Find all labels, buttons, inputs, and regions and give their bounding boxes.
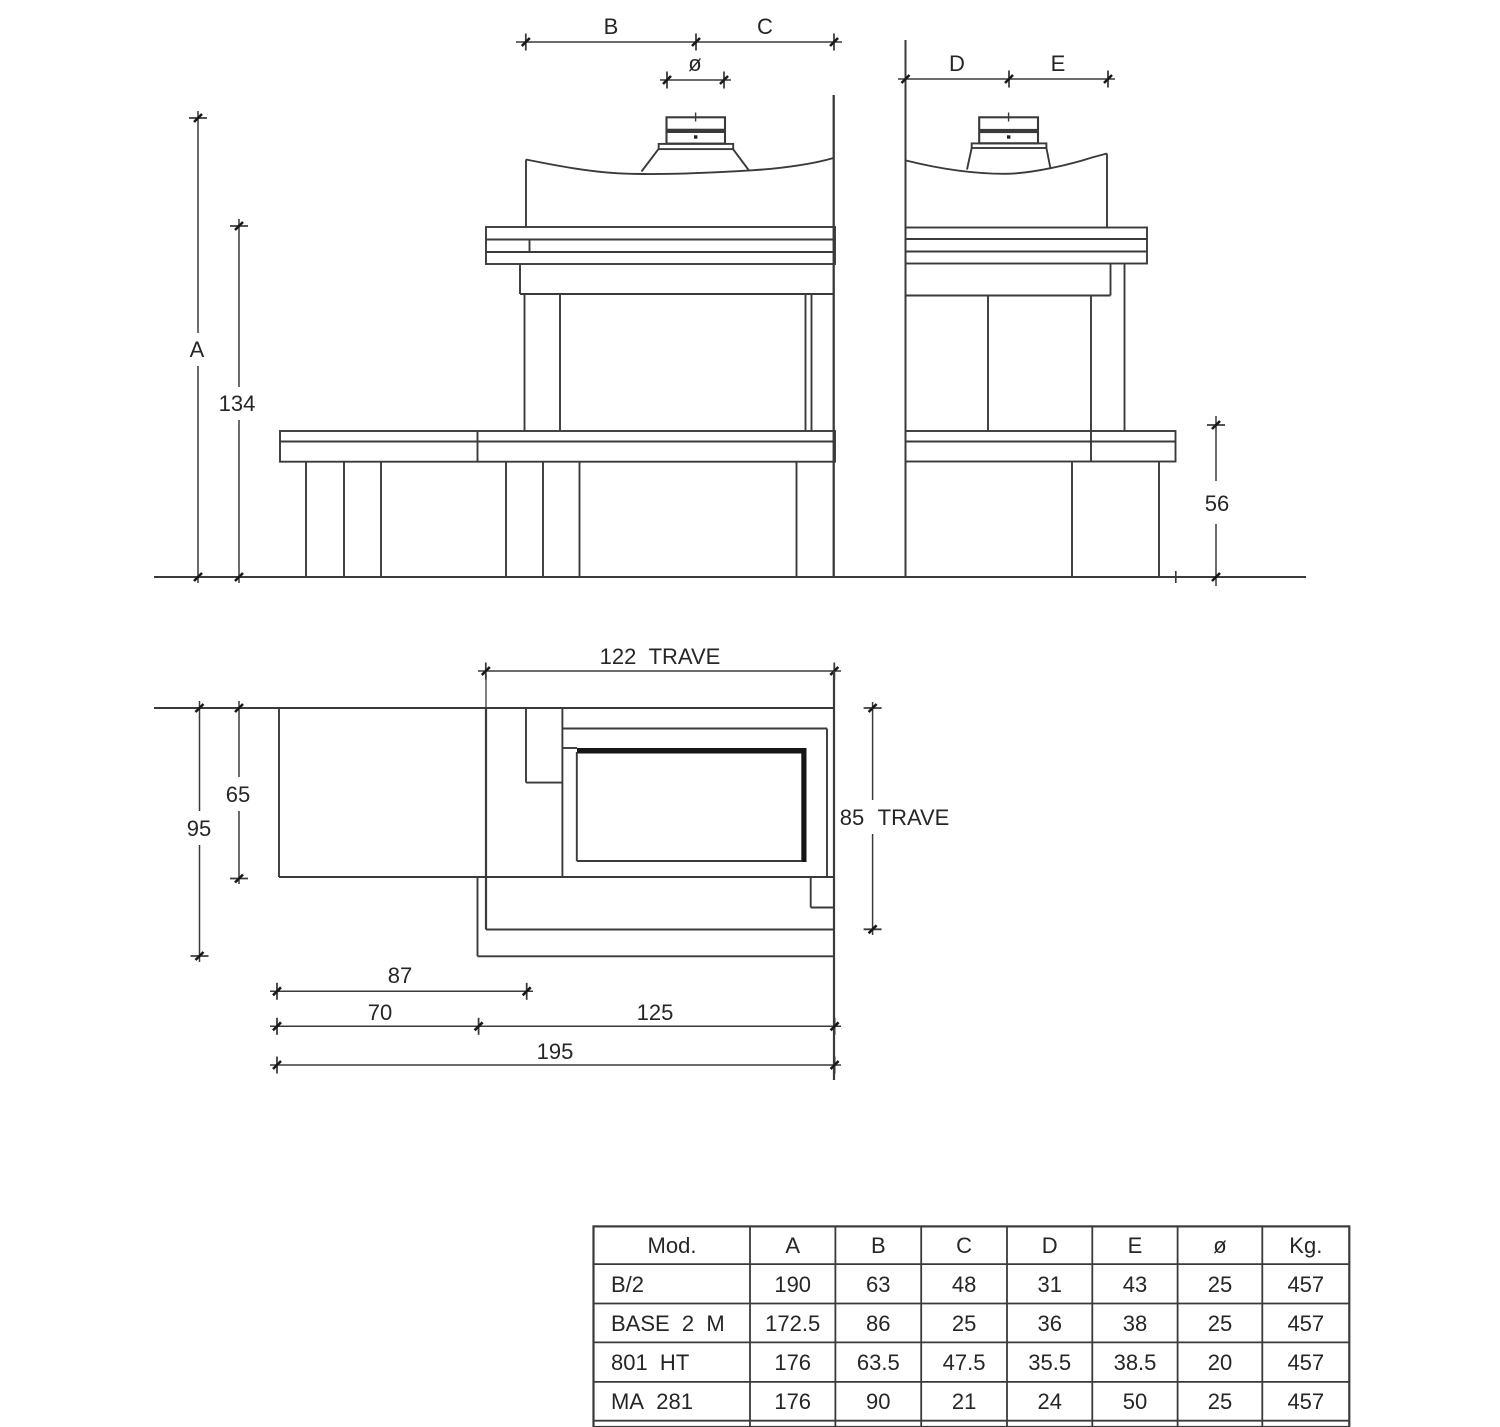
svg-text:90: 90 xyxy=(866,1389,890,1414)
svg-text:190: 190 xyxy=(774,1272,811,1297)
svg-text:63.5: 63.5 xyxy=(857,1350,900,1375)
svg-text:176: 176 xyxy=(774,1350,811,1375)
svg-text:E: E xyxy=(1051,51,1066,76)
svg-text:E: E xyxy=(1128,1233,1143,1258)
svg-text:36: 36 xyxy=(1037,1311,1061,1336)
svg-text:B: B xyxy=(604,14,619,39)
svg-text:56: 56 xyxy=(1205,491,1229,516)
svg-text:24: 24 xyxy=(1037,1389,1061,1414)
svg-text:BASE 2 M: BASE 2 M xyxy=(611,1311,725,1336)
svg-text:25: 25 xyxy=(1208,1311,1232,1336)
svg-text:D: D xyxy=(1042,1233,1058,1258)
svg-text:85: 85 xyxy=(840,805,864,830)
svg-text:65: 65 xyxy=(226,782,250,807)
svg-text:50: 50 xyxy=(1123,1389,1147,1414)
svg-text:B/2: B/2 xyxy=(611,1272,644,1297)
svg-text:47.5: 47.5 xyxy=(943,1350,986,1375)
svg-text:Kg.: Kg. xyxy=(1289,1233,1322,1258)
svg-text:457: 457 xyxy=(1287,1350,1324,1375)
svg-text:38: 38 xyxy=(1123,1311,1147,1336)
svg-text:86: 86 xyxy=(866,1311,890,1336)
svg-text:122 TRAVE: 122 TRAVE xyxy=(600,644,721,669)
svg-text:70: 70 xyxy=(368,1000,392,1025)
svg-text:63: 63 xyxy=(866,1272,890,1297)
svg-text:38.5: 38.5 xyxy=(1114,1350,1157,1375)
svg-text:Mod.: Mod. xyxy=(648,1233,697,1258)
svg-text:C: C xyxy=(956,1233,972,1258)
svg-text:A: A xyxy=(785,1233,800,1258)
svg-text:25: 25 xyxy=(952,1311,976,1336)
svg-text:176: 176 xyxy=(774,1389,811,1414)
svg-text:35.5: 35.5 xyxy=(1028,1350,1071,1375)
svg-text:134: 134 xyxy=(219,391,256,416)
svg-text:A: A xyxy=(190,337,205,362)
svg-text:ø: ø xyxy=(688,51,701,76)
svg-text:125: 125 xyxy=(637,1000,674,1025)
svg-text:43: 43 xyxy=(1123,1272,1147,1297)
svg-text:31: 31 xyxy=(1037,1272,1061,1297)
svg-text:MA 281: MA 281 xyxy=(611,1389,693,1414)
svg-text:20: 20 xyxy=(1208,1350,1232,1375)
svg-text:87: 87 xyxy=(388,963,412,988)
svg-text:457: 457 xyxy=(1287,1272,1324,1297)
svg-text:195: 195 xyxy=(537,1039,574,1064)
svg-text:C: C xyxy=(757,14,773,39)
svg-text:457: 457 xyxy=(1287,1311,1324,1336)
svg-text:TRAVE: TRAVE xyxy=(878,805,950,830)
svg-text:172.5: 172.5 xyxy=(765,1311,820,1336)
svg-text:95: 95 xyxy=(187,816,211,841)
svg-text:457: 457 xyxy=(1287,1389,1324,1414)
svg-text:48: 48 xyxy=(952,1272,976,1297)
svg-text:ø: ø xyxy=(1213,1233,1226,1258)
svg-text:B: B xyxy=(871,1233,886,1258)
svg-text:25: 25 xyxy=(1208,1272,1232,1297)
svg-text:D: D xyxy=(949,51,965,76)
svg-text:25: 25 xyxy=(1208,1389,1232,1414)
svg-text:801 HT: 801 HT xyxy=(611,1350,689,1375)
svg-text:21: 21 xyxy=(952,1389,976,1414)
